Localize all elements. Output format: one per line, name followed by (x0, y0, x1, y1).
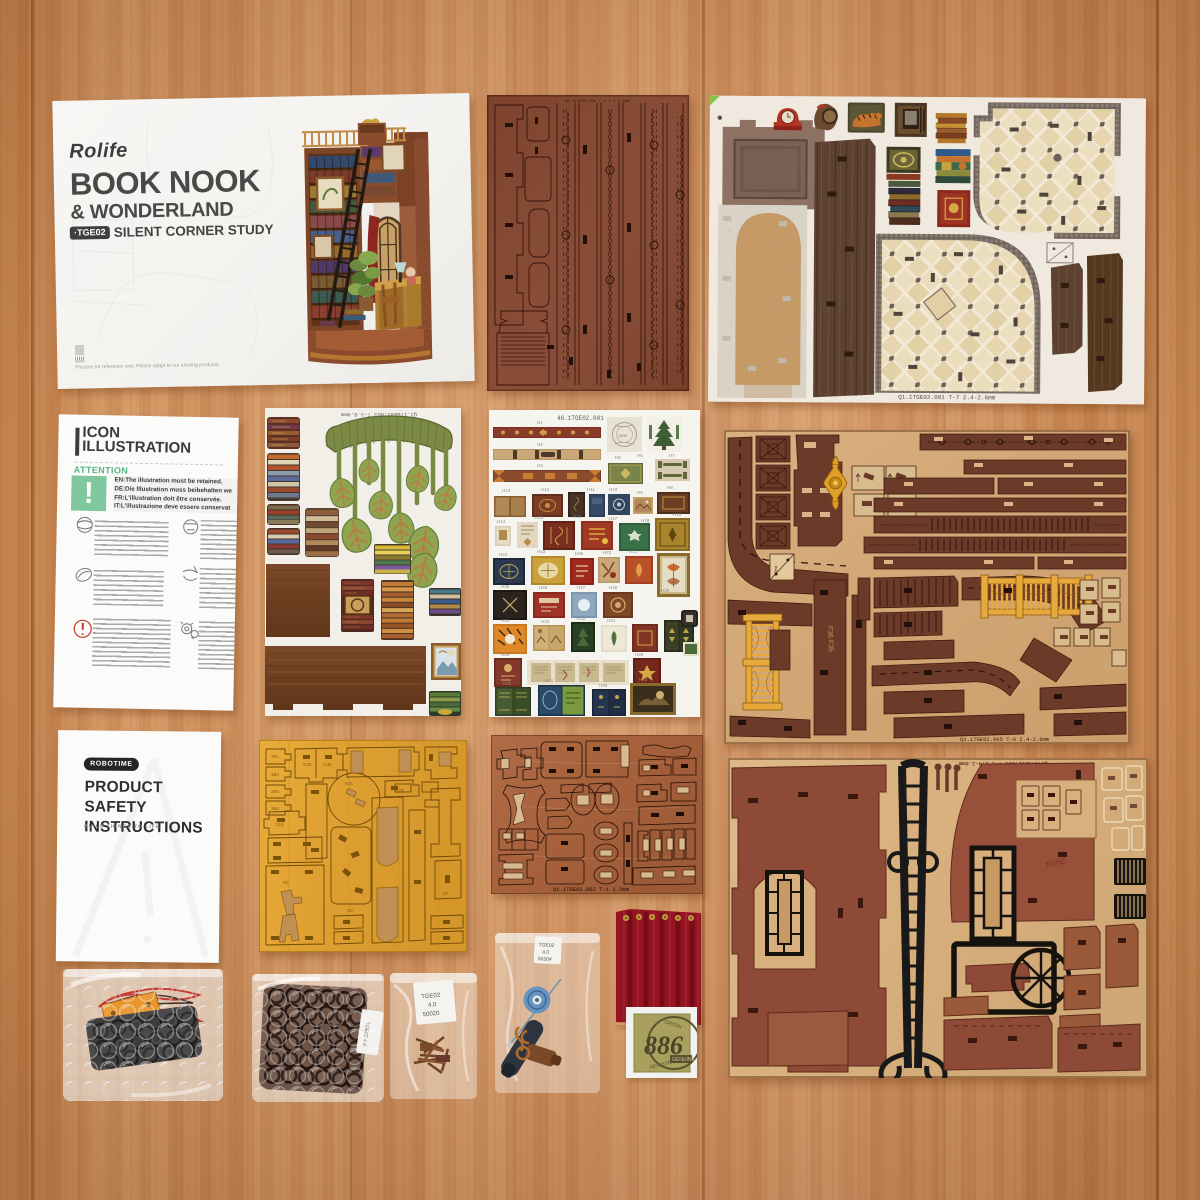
svg-text:GENUINE: GENUINE (672, 1057, 695, 1063)
svg-text:4.0: 4.0 (428, 1002, 437, 1009)
svg-text:H25: H25 (575, 551, 584, 556)
svg-text:H23: H23 (537, 549, 546, 554)
svg-text:G1E: G1E (275, 822, 284, 827)
svg-text:9G: 9G (283, 880, 290, 885)
svg-text:H29: H29 (661, 588, 670, 593)
svg-text:61E: 61E (345, 781, 353, 786)
svg-text:3B5: 3B5 (271, 806, 280, 811)
svg-text:3B6: 3B6 (271, 789, 280, 794)
svg-text:TGE02: TGE02 (538, 942, 554, 949)
svg-text:H3: H3 (537, 463, 543, 468)
svg-text:H21: H21 (629, 549, 638, 554)
svg-text:1905: 1905 (618, 433, 628, 438)
svg-text:H24: H24 (499, 552, 508, 557)
svg-text:H32: H32 (577, 616, 586, 621)
svg-text:H11: H11 (587, 487, 595, 492)
svg-text:H26: H26 (539, 585, 548, 590)
svg-text:H18: H18 (641, 518, 650, 523)
svg-text:5030#: 5030# (538, 956, 552, 963)
svg-text:Q1.1TGE02.002 T-1 1.2mm: Q1.1TGE02.002 T-1 1.2mm (553, 886, 630, 893)
svg-text:4.0: 4.0 (542, 949, 549, 955)
svg-text:Q1.1TGE02.004 T-4 2.4-2.6mm: Q1.1TGE02.004 T-4 2.4-2.6mm (565, 100, 630, 104)
svg-text:H13: H13 (502, 488, 511, 493)
svg-text:3B1: 3B1 (271, 754, 280, 759)
svg-text:H33: H33 (639, 677, 648, 682)
svg-text:H2: H2 (537, 442, 543, 447)
svg-text:46.1TGE02.001: 46.1TGE02.001 (557, 415, 604, 422)
svg-text:H22: H22 (603, 550, 612, 555)
svg-text:H7: H7 (669, 453, 675, 458)
svg-text:H30: H30 (635, 652, 644, 657)
svg-text:H38: H38 (501, 652, 510, 657)
svg-text:H15: H15 (535, 515, 544, 520)
svg-text:H1: H1 (537, 420, 543, 425)
svg-text:G2E: G2E (303, 762, 312, 767)
svg-text:H33: H33 (541, 619, 550, 624)
svg-text:H5: H5 (615, 455, 621, 460)
svg-text:Q1.1TGE02.005 T-6 2.4-2.6mm: Q1.1TGE02.005 T-6 2.4-2.6mm (960, 736, 1050, 743)
svg-text:H40: H40 (599, 683, 608, 688)
svg-text:Test: Test (773, 565, 778, 573)
svg-text:3B2: 3B2 (271, 772, 280, 777)
svg-text:3G: 3G (347, 908, 354, 913)
svg-text:H12: H12 (541, 487, 550, 492)
svg-text:H10: H10 (609, 487, 618, 492)
svg-text:F36 F35: F36 F35 (826, 626, 834, 652)
svg-text:H20: H20 (675, 546, 684, 551)
svg-text:3T: 3T (443, 891, 449, 896)
svg-text:G3E: G3E (323, 762, 332, 767)
svg-text:H16: H16 (573, 514, 582, 519)
svg-text:H19: H19 (673, 512, 682, 517)
svg-text:H42: H42 (503, 681, 512, 686)
svg-text:H8: H8 (667, 485, 673, 490)
svg-text:H27: H27 (577, 585, 586, 590)
svg-text:H34: H34 (501, 618, 510, 623)
svg-text:H41: H41 (545, 678, 554, 683)
svg-text:H28: H28 (609, 585, 618, 590)
svg-text:H17: H17 (609, 516, 618, 521)
svg-text:H6: H6 (637, 453, 643, 458)
svg-text:Q1.1TGE02.001 T-7 2.4-2.6mm: Q1.1TGE02.001 T-7 2.4-2.6mm (898, 394, 996, 402)
svg-text:H35: H35 (501, 584, 510, 589)
svg-text:P1B: P1B (395, 788, 404, 793)
svg-text:H9: H9 (637, 490, 643, 495)
svg-text:H31: H31 (607, 618, 616, 623)
svg-text:H14: H14 (497, 519, 506, 524)
